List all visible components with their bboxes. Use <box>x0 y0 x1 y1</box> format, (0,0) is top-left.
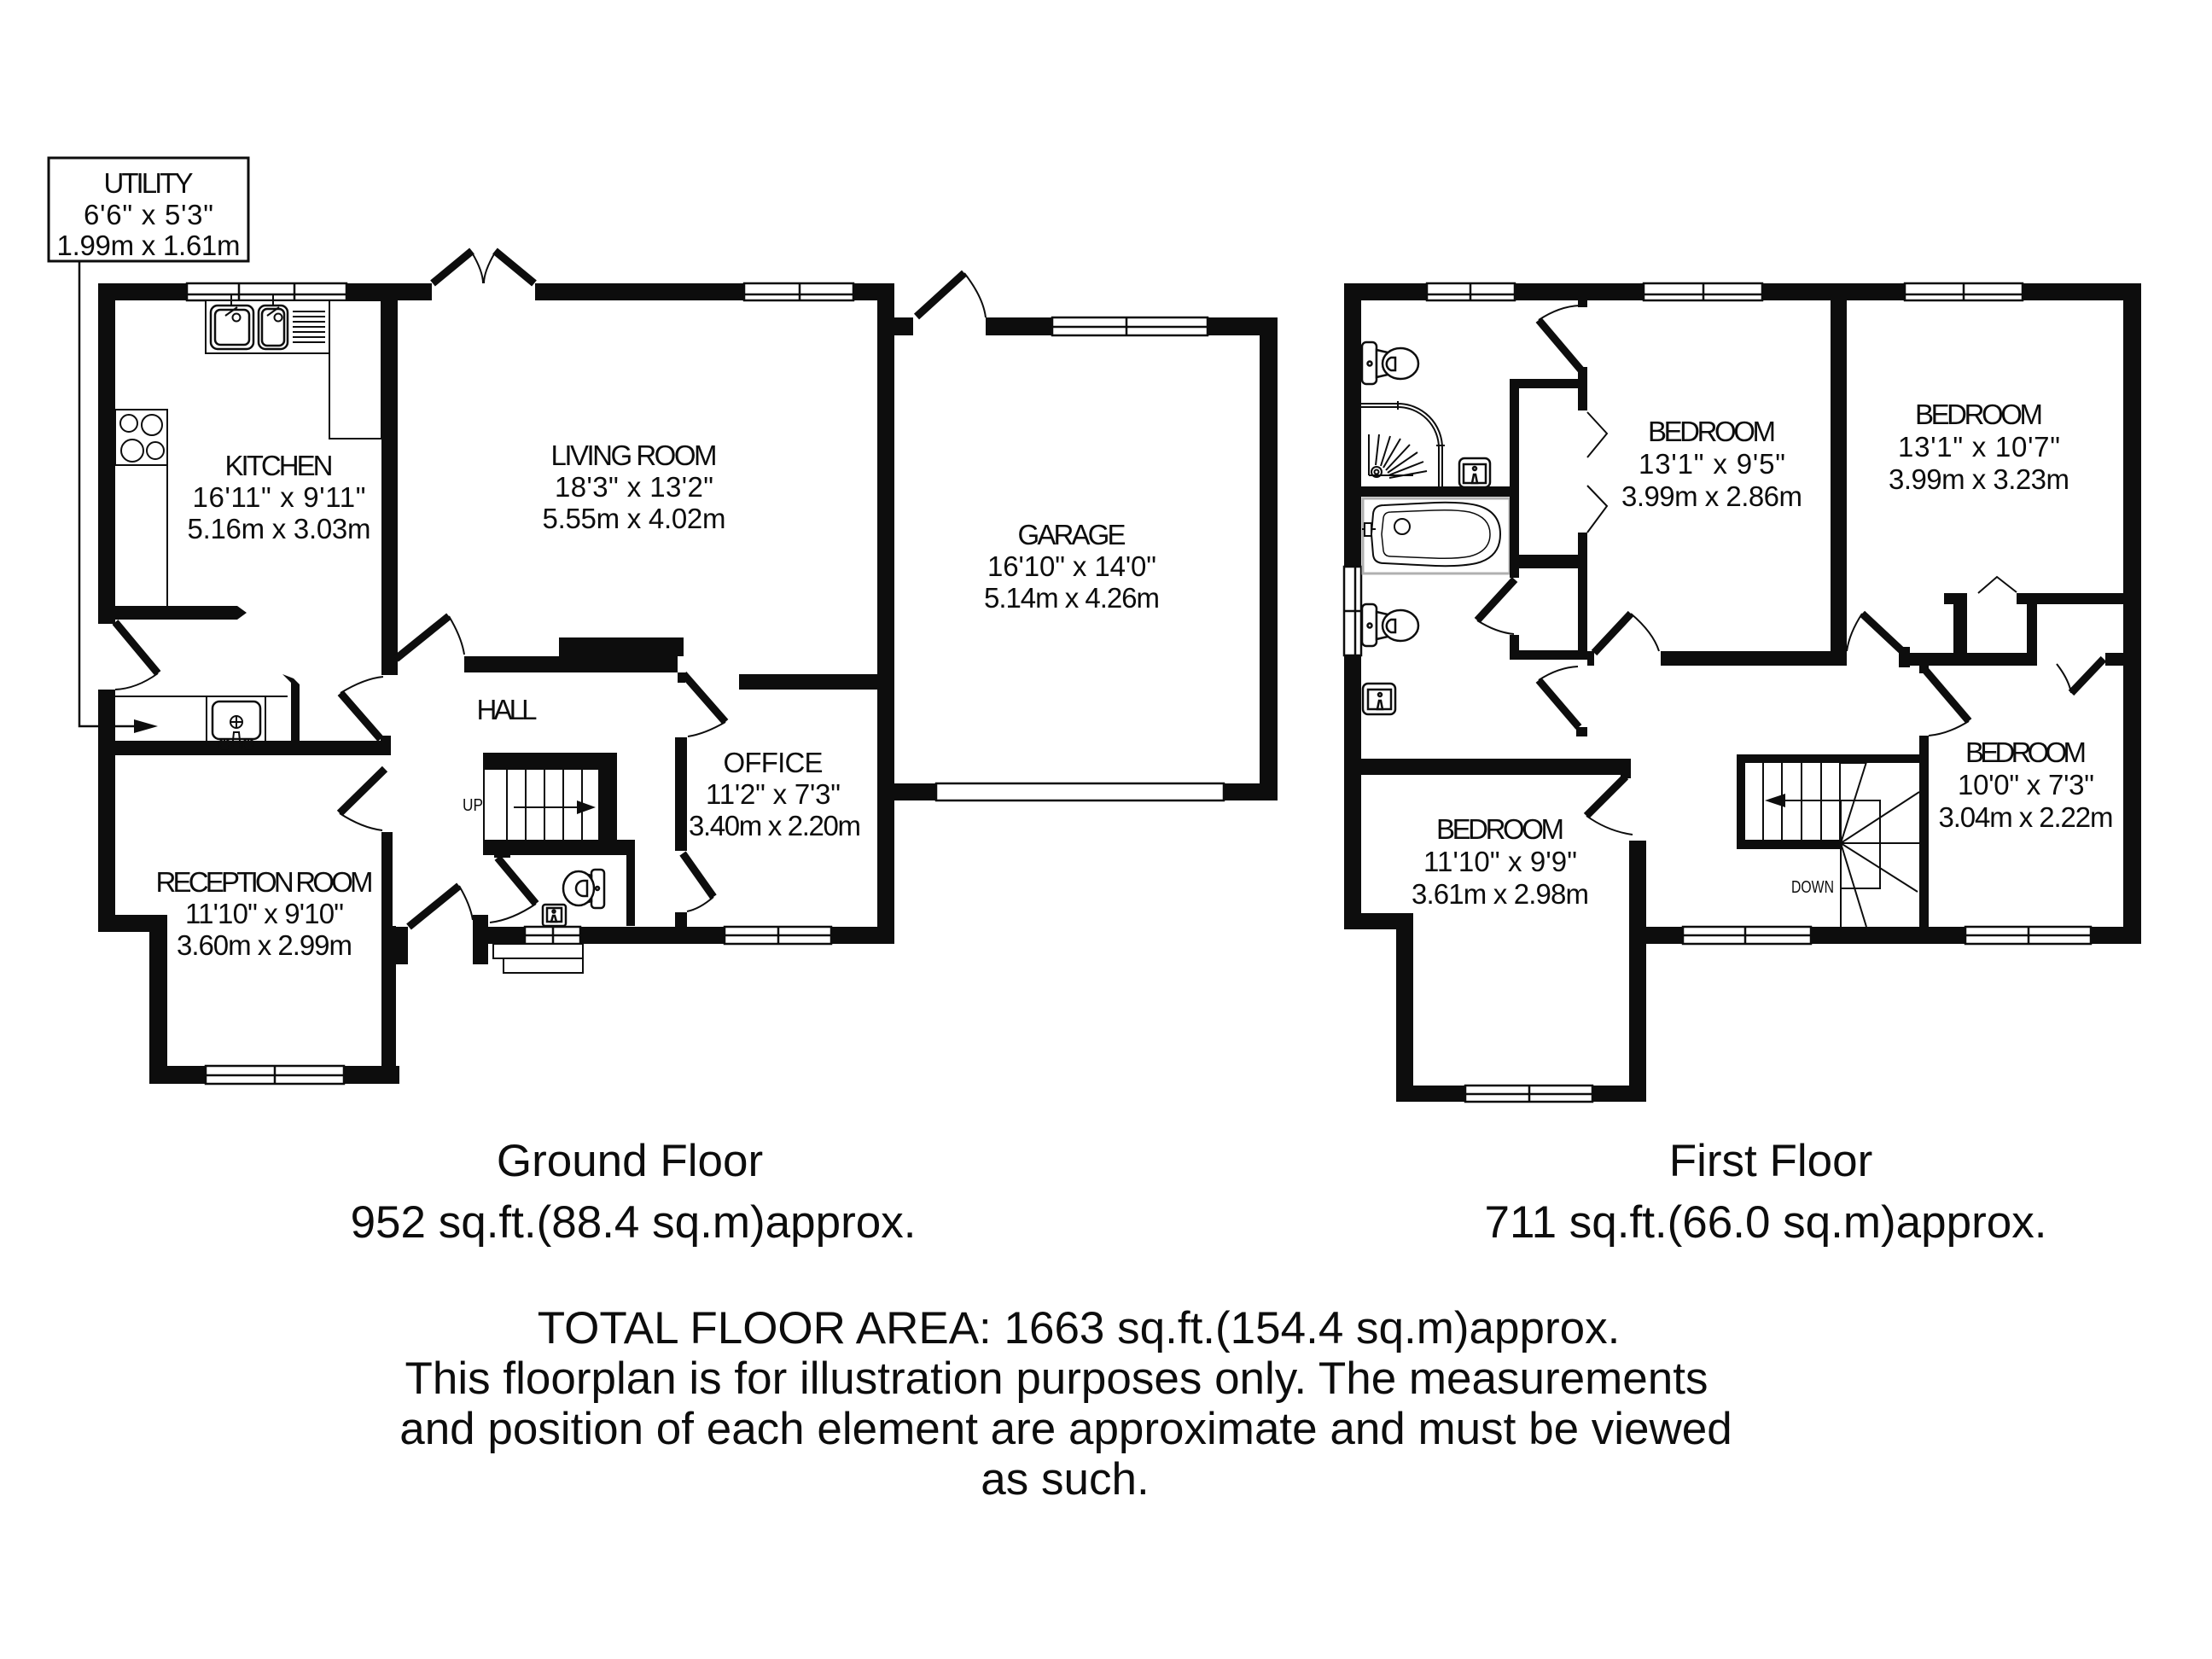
svg-text:952 sq.ft.(88.4 sq.m)approx.: 952 sq.ft.(88.4 sq.m)approx. <box>351 1197 917 1248</box>
svg-text:UTILITY: UTILITY <box>104 167 194 199</box>
svg-text:3.61m x 2.98m: 3.61m x 2.98m <box>1412 878 1589 910</box>
svg-text:3.04m x 2.22m: 3.04m x 2.22m <box>1939 801 2114 833</box>
svg-text:18'3" x 13'2": 18'3" x 13'2" <box>555 471 713 503</box>
svg-text:BEDROOM: BEDROOM <box>1436 813 1564 845</box>
svg-text:11'10" x 9'10": 11'10" x 9'10" <box>185 898 344 929</box>
svg-text:LIVING ROOM: LIVING ROOM <box>551 439 718 471</box>
svg-text:13'1" x 10'7": 13'1" x 10'7" <box>1898 431 2060 463</box>
svg-text:HALL: HALL <box>477 694 538 725</box>
svg-text:3.99m x 2.86m: 3.99m x 2.86m <box>1621 480 1802 512</box>
svg-text:10'0" x 7'3": 10'0" x 7'3" <box>1958 769 2094 800</box>
svg-text:16'11" x 9'11": 16'11" x 9'11" <box>193 481 366 513</box>
svg-text:5.16m x 3.03m: 5.16m x 3.03m <box>188 513 371 544</box>
svg-text:16'10" x 14'0": 16'10" x 14'0" <box>987 550 1156 582</box>
svg-text:5.14m x 4.26m: 5.14m x 4.26m <box>984 582 1160 614</box>
svg-text:711 sq.ft.(66.0 sq.m)approx.: 711 sq.ft.(66.0 sq.m)approx. <box>1485 1197 2047 1248</box>
svg-text:as such.: as such. <box>981 1454 1149 1505</box>
svg-text:OFFICE: OFFICE <box>724 747 824 778</box>
svg-text:BEDROOM: BEDROOM <box>1965 736 2087 768</box>
svg-text:UP: UP <box>463 796 483 815</box>
svg-text:1.99m x 1.61m: 1.99m x 1.61m <box>57 230 241 261</box>
svg-text:Ground Floor: Ground Floor <box>497 1136 763 1186</box>
svg-text:DOWN: DOWN <box>1791 878 1834 897</box>
svg-text:This floorplan is for illustra: This floorplan is for illustration purpo… <box>405 1353 1708 1404</box>
svg-text:GARAGE: GARAGE <box>1018 519 1126 550</box>
svg-text:13'1" x 9'5": 13'1" x 9'5" <box>1639 448 1785 480</box>
svg-text:and position of each element a: and position of each element are approxi… <box>399 1404 1732 1454</box>
svg-text:11'10" x 9'9": 11'10" x 9'9" <box>1423 846 1577 877</box>
svg-text:RECEPTION ROOM: RECEPTION ROOM <box>156 866 374 898</box>
svg-text:KITCHEN: KITCHEN <box>225 450 334 481</box>
svg-text:5.55m x 4.02m: 5.55m x 4.02m <box>543 503 726 534</box>
svg-text:3.60m x 2.99m: 3.60m x 2.99m <box>177 929 352 961</box>
svg-text:BEDROOM: BEDROOM <box>1915 399 2043 430</box>
svg-text:3.40m x 2.20m: 3.40m x 2.20m <box>689 810 861 841</box>
svg-text:3.99m x 3.23m: 3.99m x 3.23m <box>1889 463 2069 495</box>
svg-text:First Floor: First Floor <box>1669 1136 1873 1186</box>
svg-text:BEDROOM: BEDROOM <box>1648 416 1776 447</box>
svg-text:6'6" x 5'3": 6'6" x 5'3" <box>84 199 213 230</box>
svg-text:TOTAL FLOOR AREA: 1663 sq.ft.(: TOTAL FLOOR AREA: 1663 sq.ft.(154.4 sq.m… <box>538 1303 1621 1353</box>
svg-text:11'2" x 7'3": 11'2" x 7'3" <box>706 778 841 810</box>
